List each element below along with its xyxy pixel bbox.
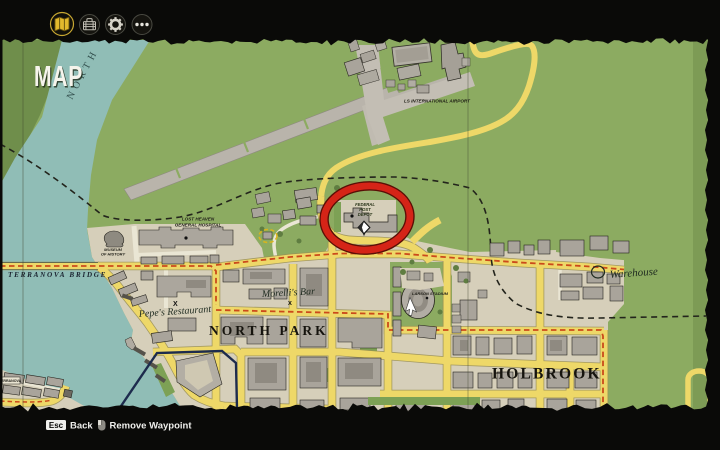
- svg-text:HOLBROOK: HOLBROOK: [492, 366, 602, 383]
- svg-text:LOST HEAVEN: LOST HEAVEN: [182, 217, 215, 222]
- svg-text:NORTH PARK: NORTH PARK: [209, 323, 329, 338]
- svg-text:Remove Waypoint: Remove Waypoint: [110, 421, 193, 432]
- svg-text:Esc: Esc: [49, 421, 64, 430]
- svg-text:MAP: MAP: [34, 61, 83, 93]
- svg-text:GENERAL HOSPITAL: GENERAL HOSPITAL: [175, 223, 222, 228]
- svg-text:DEPOT: DEPOT: [358, 212, 373, 217]
- svg-text:LARSON STADIUM: LARSON STADIUM: [412, 291, 449, 296]
- svg-text:x: x: [288, 300, 292, 307]
- svg-text:X: X: [173, 301, 178, 308]
- svg-text:Back: Back: [70, 421, 93, 432]
- svg-text:OF HISTORY: OF HISTORY: [101, 252, 126, 257]
- svg-text:TERRANOVA: TERRANOVA: [0, 379, 22, 383]
- svg-text:LS INTERNATIONAL AIRPORT: LS INTERNATIONAL AIRPORT: [404, 99, 471, 104]
